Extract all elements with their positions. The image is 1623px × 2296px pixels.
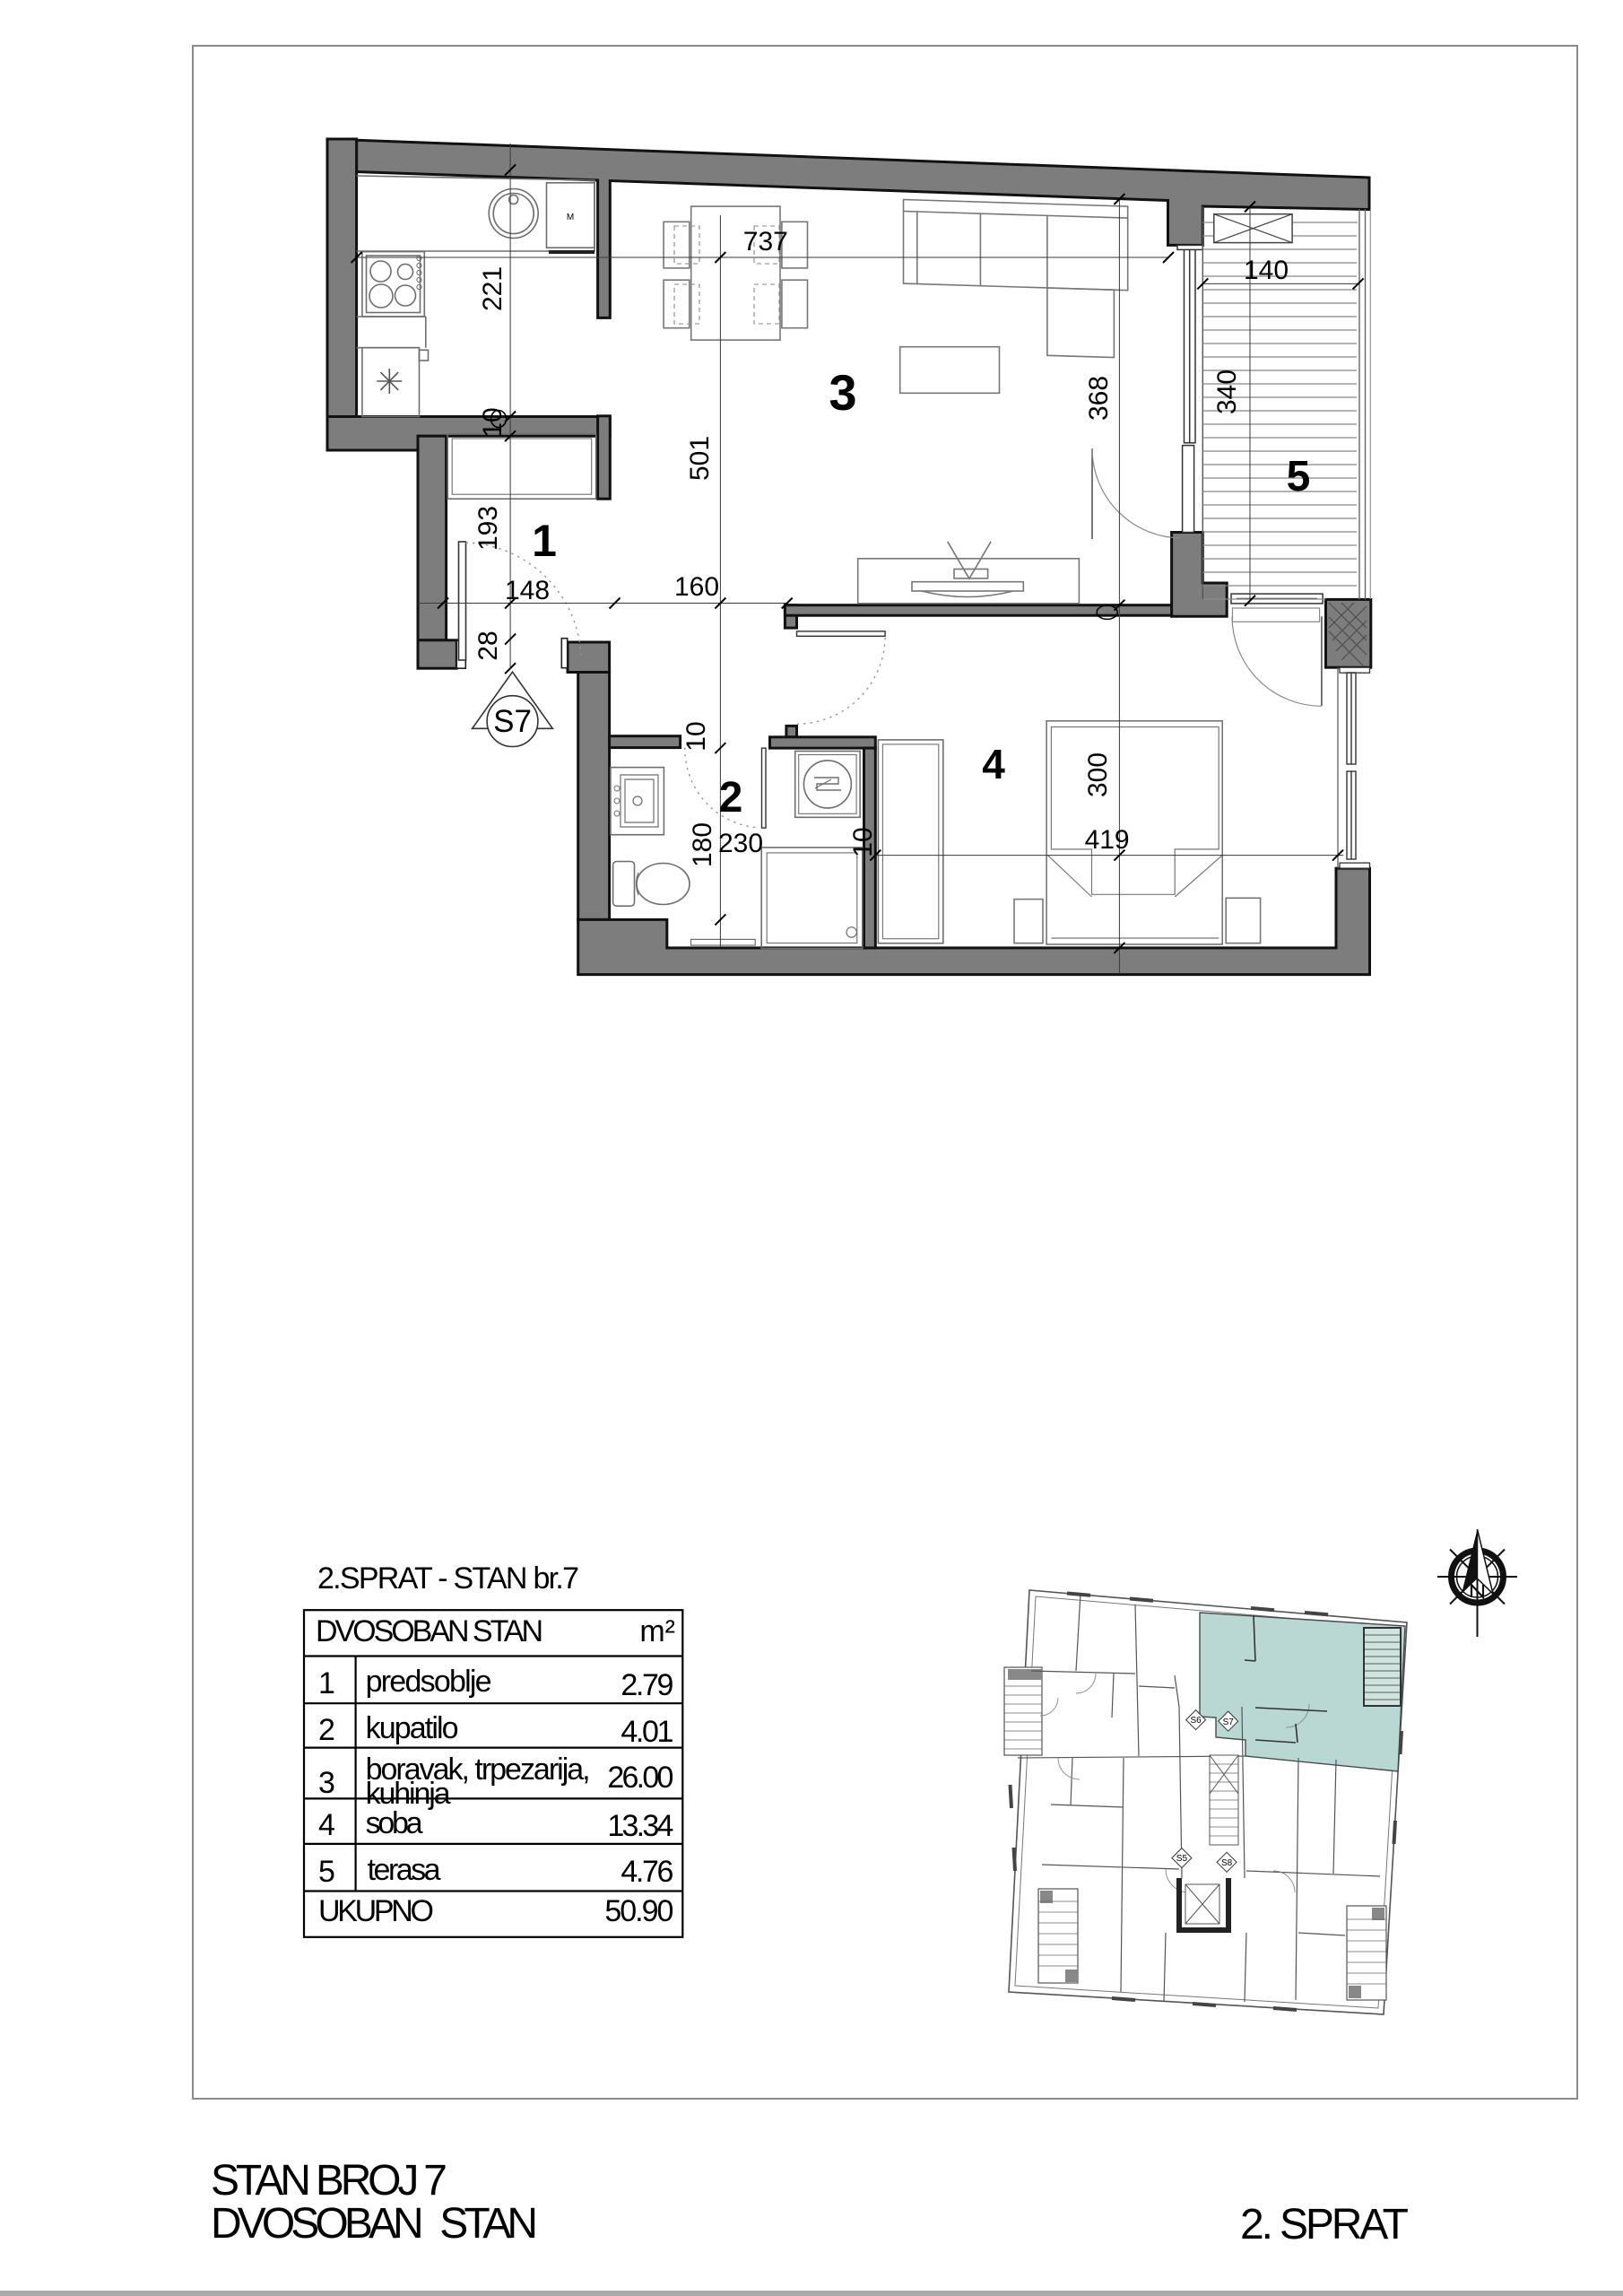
svg-text:2. SPRAT: 2. SPRAT — [1240, 2201, 1409, 2248]
svg-text:148: 148 — [505, 576, 550, 605]
svg-text:10: 10 — [681, 721, 711, 751]
svg-text:221: 221 — [478, 266, 508, 311]
svg-text:180: 180 — [688, 822, 717, 867]
svg-text:S8: S8 — [1221, 1858, 1233, 1868]
svg-text:S7: S7 — [493, 704, 532, 739]
svg-text:1: 1 — [318, 1666, 335, 1700]
svg-text:160: 160 — [674, 572, 719, 602]
svg-text:DVOSOBAN STAN: DVOSOBAN STAN — [316, 1614, 543, 1648]
svg-text:2.79: 2.79 — [621, 1668, 673, 1702]
svg-text:5: 5 — [318, 1855, 335, 1889]
svg-text:M: M — [567, 213, 574, 222]
svg-text:3: 3 — [829, 364, 856, 421]
svg-text:predsoblje: predsoblje — [366, 1665, 492, 1699]
svg-text:10: 10 — [848, 827, 878, 857]
svg-text:230: 230 — [718, 829, 763, 858]
svg-text:13.34: 13.34 — [607, 1809, 673, 1843]
svg-text:S5: S5 — [1176, 1854, 1188, 1864]
svg-text:2: 2 — [719, 774, 743, 822]
svg-text:50.90: 50.90 — [604, 1894, 673, 1928]
svg-text:28: 28 — [473, 631, 503, 660]
svg-text:140: 140 — [1244, 256, 1289, 285]
svg-text:DVOSOBAN STAN: DVOSOBAN STAN — [211, 2200, 538, 2248]
svg-text:4.76: 4.76 — [621, 1855, 673, 1889]
svg-text:368: 368 — [1084, 376, 1114, 421]
svg-text:UKUPNO: UKUPNO — [318, 1894, 434, 1928]
svg-text:300: 300 — [1083, 752, 1113, 797]
svg-text:419: 419 — [1085, 825, 1130, 855]
svg-text:5: 5 — [1287, 453, 1311, 500]
svg-text:terasa: terasa — [368, 1853, 441, 1887]
svg-text:S7: S7 — [1223, 1718, 1235, 1727]
svg-text:2: 2 — [318, 1713, 335, 1747]
svg-text:26.00: 26.00 — [607, 1761, 673, 1795]
svg-text:STAN BROJ 7: STAN BROJ 7 — [211, 2157, 447, 2205]
svg-text:4: 4 — [982, 741, 1005, 787]
svg-text:kupatilo: kupatilo — [366, 1711, 459, 1745]
svg-text:soba: soba — [366, 1806, 423, 1840]
svg-text:4.01: 4.01 — [621, 1715, 673, 1749]
svg-text:S6: S6 — [1190, 1716, 1202, 1726]
svg-text:1: 1 — [532, 516, 557, 566]
svg-text:193: 193 — [473, 506, 503, 551]
svg-text:340: 340 — [1212, 370, 1242, 414]
svg-text:737: 737 — [743, 227, 788, 257]
svg-text:3: 3 — [318, 1766, 335, 1800]
svg-text:m²: m² — [639, 1614, 675, 1648]
svg-text:4: 4 — [318, 1808, 335, 1842]
svg-text:501: 501 — [685, 436, 715, 481]
svg-text:2.SPRAT - STAN br.7: 2.SPRAT - STAN br.7 — [317, 1561, 579, 1596]
